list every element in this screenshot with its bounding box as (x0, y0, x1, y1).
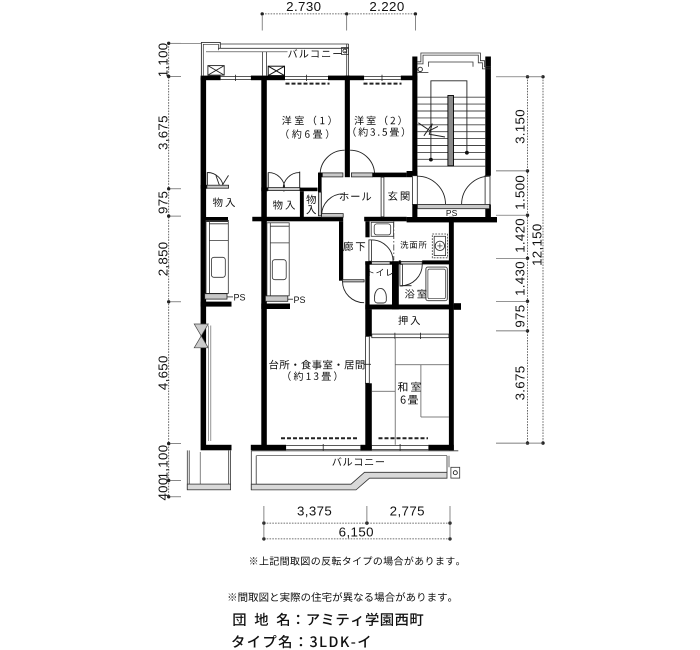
svg-text:6,150: 6,150 (339, 524, 374, 539)
svg-text:4,650: 4,650 (156, 355, 171, 390)
svg-text:3.675: 3.675 (513, 366, 528, 401)
svg-text:1,100: 1,100 (156, 43, 171, 78)
svg-text:1,100: 1,100 (156, 445, 171, 480)
svg-text:3,675: 3,675 (156, 115, 171, 150)
svg-text:975: 975 (156, 191, 171, 214)
svg-text:975: 975 (513, 305, 528, 328)
svg-text:2,850: 2,850 (156, 242, 171, 277)
svg-text:3,375: 3,375 (297, 504, 332, 519)
svg-text:400: 400 (156, 477, 171, 500)
svg-text:2,775: 2,775 (390, 504, 425, 519)
svg-text:1.500: 1.500 (513, 175, 528, 210)
svg-text:3.150: 3.150 (513, 109, 528, 144)
svg-text:1.430: 1.430 (513, 261, 528, 296)
svg-text:2.730: 2.730 (286, 0, 321, 14)
svg-text:PS: PS (234, 293, 246, 303)
svg-text:1.420: 1.420 (513, 218, 528, 253)
svg-text:PS: PS (446, 208, 458, 218)
svg-text:2.220: 2.220 (369, 0, 404, 14)
svg-text:12,150: 12,150 (529, 223, 544, 265)
svg-text:PS: PS (294, 295, 306, 305)
